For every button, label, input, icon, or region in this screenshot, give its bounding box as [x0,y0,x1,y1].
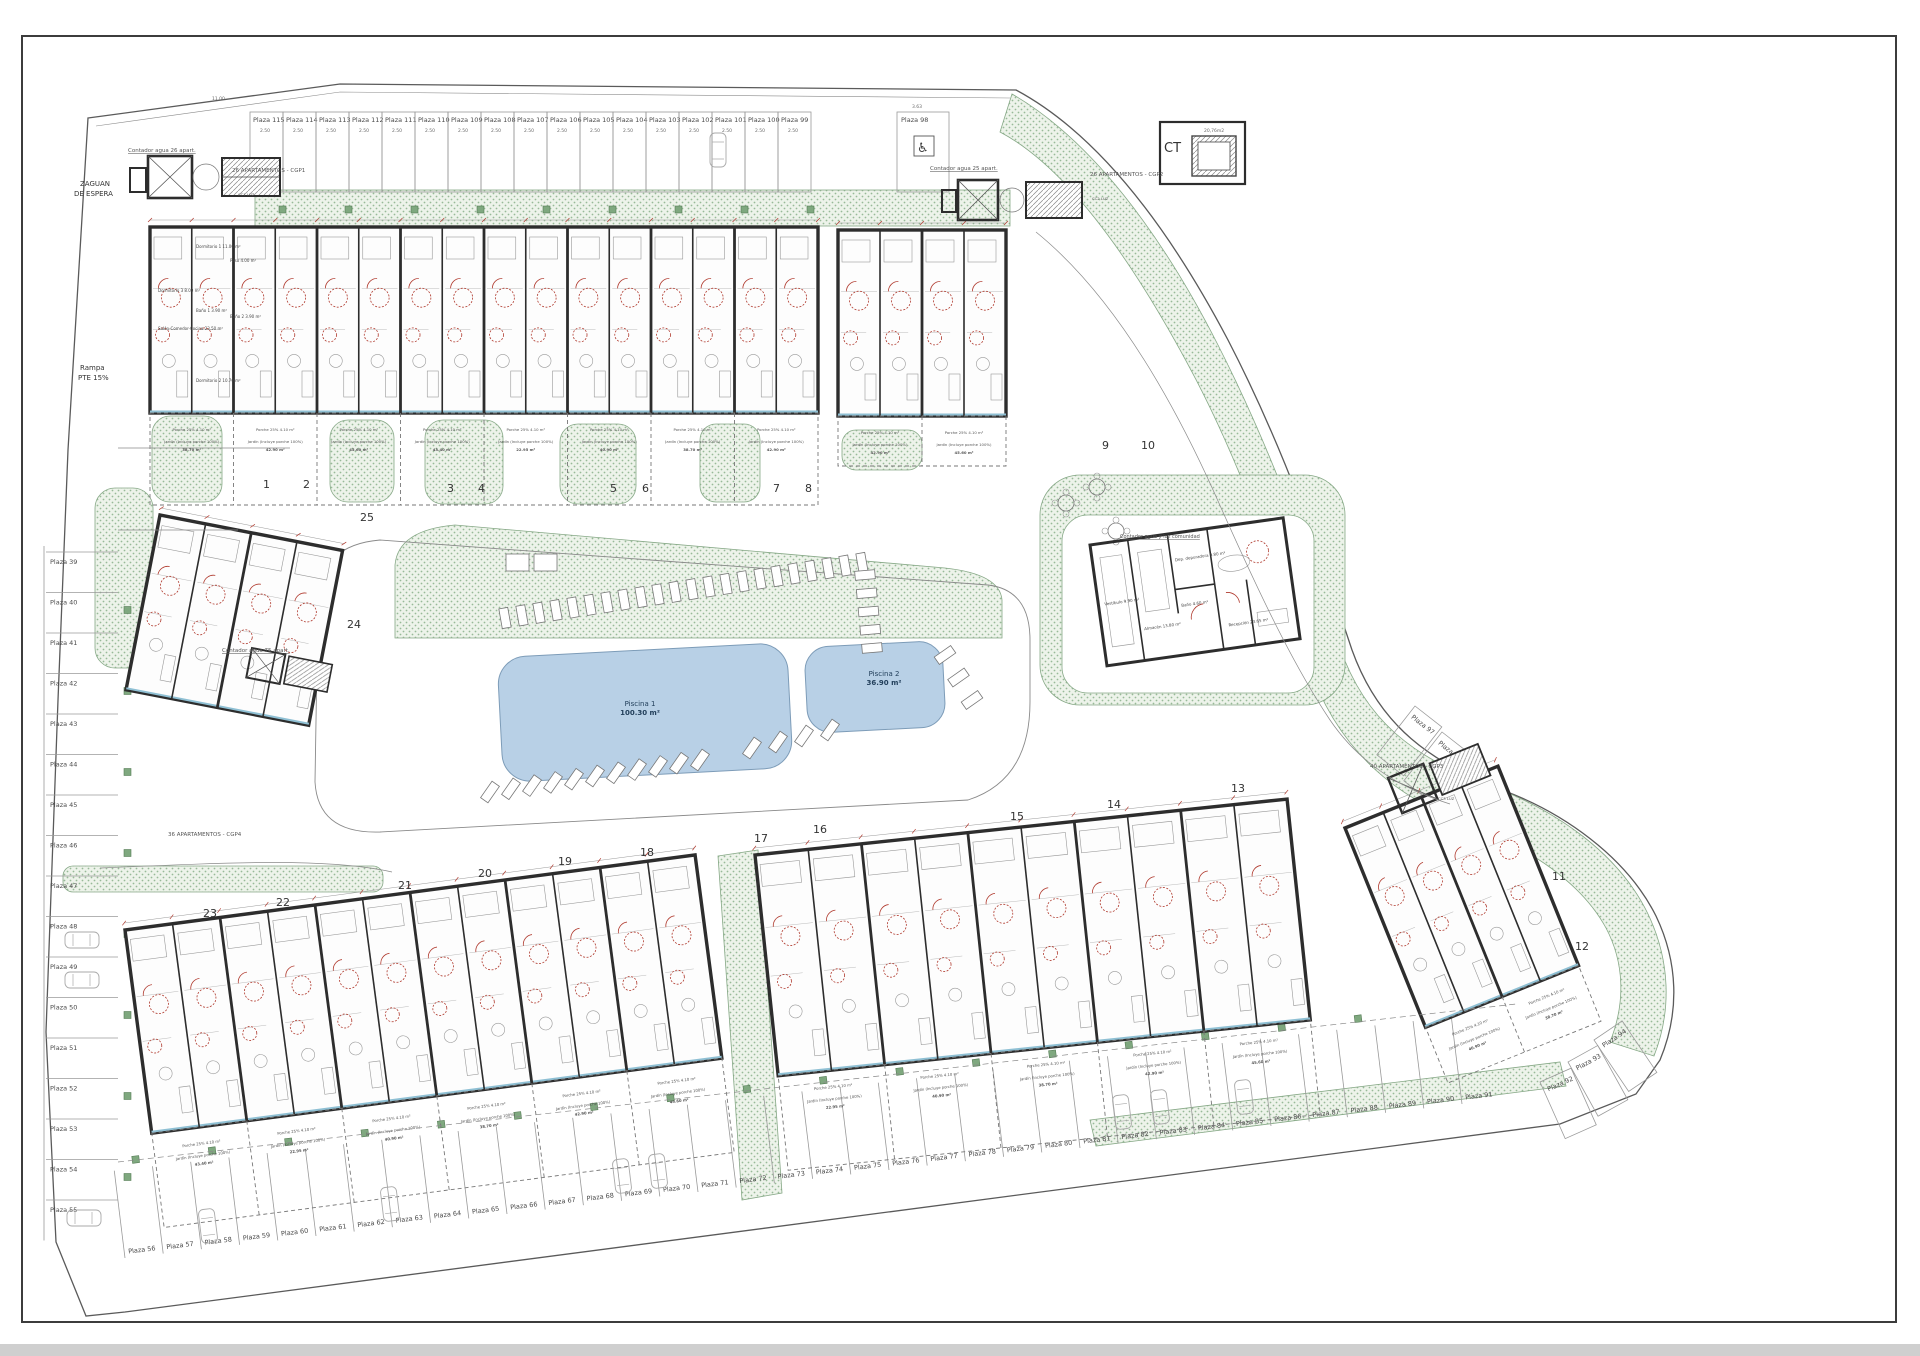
shrub-icon [477,206,484,213]
pool-kiosk [506,554,529,571]
jardin-label: Jardín (Incluye porche 100%) [581,439,637,444]
jardin-area-label: 42.90 m² [767,447,786,452]
parking-stall-label: Plaza 40 [50,599,77,607]
block-number: 12 [1575,940,1589,953]
shrub-icon [609,206,616,213]
room-label: Dormitorio 3 8.00 m² [158,288,200,293]
stall-dim-label: 2.50 [689,128,699,134]
parking-stall-label: Plaza 45 [50,801,77,809]
block-number: 4 [478,482,485,495]
stall-dim-label: 2.50 [392,128,402,134]
pool-kiosk [534,554,557,571]
parking-stall-label: Plaza 112 [352,116,384,124]
window-bottom-strip [0,1344,1920,1356]
room-label: Salón-Comedor-Cocina 23.50 m² [158,326,223,331]
shrub-icon [124,1174,131,1181]
jardin-label: Jardín (Incluye porche 100%) [748,439,804,444]
cc2-label: CC2 LUZ [1092,196,1109,201]
jardin-area-label: 40.90 m² [600,447,619,452]
porche-label: Porche 25% 4.10 m² [673,427,712,432]
stall-dim-label: 2.50 [722,128,732,134]
cgp3-label: 40 APARTAMENTOS - CGP3 [1370,764,1444,770]
block-number: 11 [1552,870,1566,883]
parking-stall-label: Plaza 113 [319,116,351,124]
block-number: 22 [276,896,290,909]
sun-lounger [862,643,883,654]
parking-stall-label: Plaza 51 [50,1044,77,1052]
parking-stall-label: Plaza 43 [50,720,77,728]
parking-stall-label: Plaza 101 [715,116,747,124]
parking-stall-label: Plaza 102 [682,116,714,124]
shrub-icon [124,1093,131,1100]
sun-lounger [858,606,879,617]
block-number: 19 [558,855,572,868]
jardin-label: Jardín (Incluye porche 100%) [497,439,553,444]
stall-dim-label: 2.50 [326,128,336,134]
stall-dim-label: 2.50 [458,128,468,134]
stall-dim-label: 2.50 [755,128,765,134]
pool-1-area: 100.30 m² [620,709,660,717]
jardin-area-label: 45.60 m² [349,447,368,452]
pool-2 [804,640,946,733]
sun-lounger [856,588,877,599]
porche-label: Porche 25% 4.10 m² [945,430,984,435]
parking-stall-label: Plaza 98 [901,116,928,124]
shrub-icon [543,206,550,213]
block-number: 16 [813,823,827,836]
stall-dim-label: 2.50 [656,128,666,134]
porche-label: Porche 25% 4.10 m² [757,427,796,432]
cc1-label: CC1 LUZ [238,192,255,197]
meter-25-label: Contador agua 25 apart. [930,166,998,172]
ct-transformer: CT 20,76m2 [1160,122,1245,184]
block-number: 7 [773,482,780,495]
parking-stall-label: Plaza 108 [484,116,516,124]
svg-text:♿: ♿ [917,141,929,156]
parking-stall-label: Plaza 39 [50,558,77,566]
block-number: 14 [1107,798,1121,811]
shrub-icon [124,850,131,857]
porche-label: Porche 25% 4.10 m² [590,427,629,432]
shrub-icon [675,206,682,213]
stall-dim-label: 2.50 [524,128,534,134]
cgp1-label: 26 APARTAMENTOS - CGP1 [232,168,305,174]
parking-stall-label: Plaza 114 [286,116,318,124]
room-label: Baño 2 3.90 m² [230,314,261,319]
parking-stall-label: Plaza 48 [50,923,77,931]
block-number: 8 [805,482,812,495]
parking-stall-label: Plaza 44 [50,761,77,769]
stall-dim-label: 2.50 [425,128,435,134]
block-number: 1 [263,478,270,491]
jardin-area-label: 45.60 m² [955,450,974,455]
porche-label: Porche 25% 4.10 m² [339,427,378,432]
room-label: Paso 4.00 m² [230,258,257,263]
parking-stall-label: Plaza 50 [50,1004,77,1012]
stall-dim-label: 2.50 [359,128,369,134]
site-plan-drawing: Piscina 1 100.30 m² Piscina 2 36.90 m² P… [0,0,1920,1356]
pool-2-area: 36.90 m² [867,679,902,687]
parking-stall-label: Plaza 47 [50,882,77,890]
jardin-label: Jardín (Incluye porche 100%) [330,439,386,444]
block-number: 15 [1010,810,1024,823]
jardin-label: Jardín (Incluye porche 100%) [852,442,908,447]
block-number: 3 [447,482,454,495]
stall-dim-label: 2.50 [491,128,501,134]
parking-stall-label: Plaza 107 [517,116,549,124]
meter-26-label: Contador agua 26 apart. [128,148,196,154]
dim-363: 3.63 [912,104,922,110]
block-number: 24 [347,618,361,631]
shrub-icon [819,1076,827,1084]
dim-11: 11.00 [212,96,225,102]
stall-dim-label: 2.50 [590,128,600,134]
community-meter-label: Contador agua y luz comunidad [1120,534,1200,540]
room-label: Baño 1 3.90 m² [196,308,227,313]
block-number: 5 [610,482,617,495]
shrub-icon [741,206,748,213]
shrub-icon [807,206,814,213]
porche-label: Porche 25% 4.10 m² [256,427,295,432]
room-label: Dormitorio 2 10.70 m² [196,378,241,383]
jardin-area-label: 38.70 m² [683,447,702,452]
shrub-icon [411,206,418,213]
jardin-label: Jardín (Incluye porche 100%) [414,439,470,444]
pool-1-name: Piscina 1 [625,700,656,708]
zaguan-label-2: DE ESPERA [74,190,113,198]
cgp2-label: 26 APARTAMENTOS - CGP2 [1090,172,1163,178]
porche-label: Porche 25% 4.10 m² [172,427,211,432]
jardin-area-label: 43.40 m² [433,447,452,452]
stall-dim-label: 2.50 [557,128,567,134]
shrub-icon [124,1012,131,1019]
block-number: 17 [754,832,768,845]
meter-75-label: Contador agua 75 apart. [222,648,290,654]
block-number: 23 [203,907,217,920]
parking-stall-label: Plaza 52 [50,1085,77,1093]
stall-dim-label: 2.50 [788,128,798,134]
parking-stall-label: Plaza 105 [583,116,615,124]
shrub-icon [124,769,131,776]
parking-stall-label: Plaza 104 [616,116,648,124]
jardin-label: Jardín (Incluye porche 100%) [163,439,219,444]
cc3-label: CC3 LUZ [1438,796,1455,801]
shrub-icon [345,206,352,213]
porche-label: Porche 25% 4.10 m² [423,427,462,432]
block-number: 10 [1141,439,1155,452]
jardin-area-label: 22.95 m² [516,447,535,452]
block-number: 20 [478,867,492,880]
porche-label: Porche 25% 4.10 m² [506,427,545,432]
block-number: 25 [360,511,374,524]
sun-lounger [860,624,881,635]
jardin-label: Jardín (Incluye porche 100%) [936,442,992,447]
block-number: 9 [1102,439,1109,452]
parking-stall-label: Plaza 49 [50,963,77,971]
parking-stall-label: Plaza 100 [748,116,780,124]
parking-stall-label: Plaza 99 [781,116,808,124]
parking-stall-label: Plaza 53 [50,1125,77,1133]
cgp4-label: 36 APARTAMENTOS - CGP4 [168,832,242,838]
jardin-area-label: 42.90 m² [871,450,890,455]
sun-lounger [855,570,876,581]
parking-stall-label: Plaza 115 [253,116,285,124]
stall-dim-label: 2.50 [293,128,303,134]
block-number: 13 [1231,782,1245,795]
parking-stall-label: Plaza 109 [451,116,483,124]
jardin-label: Jardín (Incluye porche 100%) [247,439,303,444]
zaguan-label-1: ZAGUAN [80,180,110,188]
shrub-icon [279,206,286,213]
stall-dim-label: 2.50 [623,128,633,134]
parking-stall-label: Plaza 106 [550,116,582,124]
block-number: 6 [642,482,649,495]
block-number: 18 [640,846,654,859]
stall-dim-label: 2.50 [260,128,270,134]
ct-label: CT [1164,141,1181,156]
parking-stall-label: Plaza 103 [649,116,681,124]
parking-stall-label: Plaza 41 [50,639,77,647]
block-number: 2 [303,478,310,491]
room-label: Dormitorio 1 11.00 m² [196,244,241,249]
parking-stall-label: Plaza 46 [50,842,77,850]
shrub-icon [124,607,131,614]
shrub-icon [743,1085,751,1093]
porche-label: Porche 25% 4.10 m² [861,430,900,435]
rampa-label-1: Rampa [80,364,105,372]
jardin-label: Jardín (Incluye porche 100%) [664,439,720,444]
block-number: 21 [398,879,412,892]
pool-2-name: Piscina 2 [869,670,900,678]
ct-area-label: 20,76m2 [1204,128,1224,134]
parking-stall-label: Plaza 42 [50,680,77,688]
rampa-label-2: PTE 15% [78,374,109,382]
parking-stall-label: Plaza 110 [418,116,450,124]
parking-stall-label: Plaza 54 [50,1166,77,1174]
parking-stall-label: Plaza 111 [385,116,417,124]
